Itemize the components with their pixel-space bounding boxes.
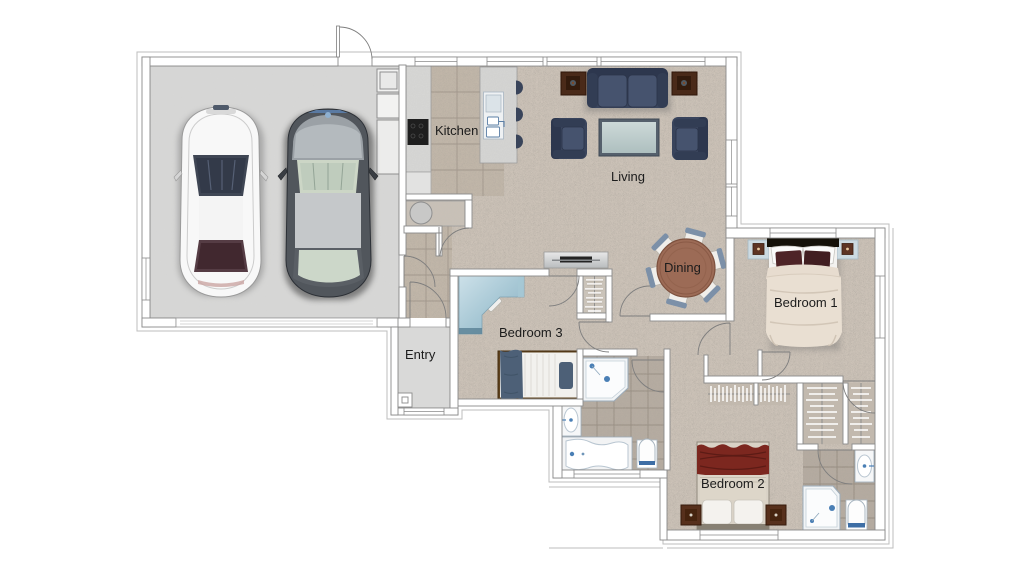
svg-text:Dining: Dining xyxy=(664,260,701,275)
svg-text:Bedroom 2: Bedroom 2 xyxy=(701,476,765,491)
svg-text:Kitchen: Kitchen xyxy=(435,123,478,138)
svg-text:Bedroom 1: Bedroom 1 xyxy=(774,295,838,310)
svg-text:Living: Living xyxy=(611,169,645,184)
svg-text:Bedroom 3: Bedroom 3 xyxy=(499,325,563,340)
svg-text:Entry: Entry xyxy=(405,347,436,362)
